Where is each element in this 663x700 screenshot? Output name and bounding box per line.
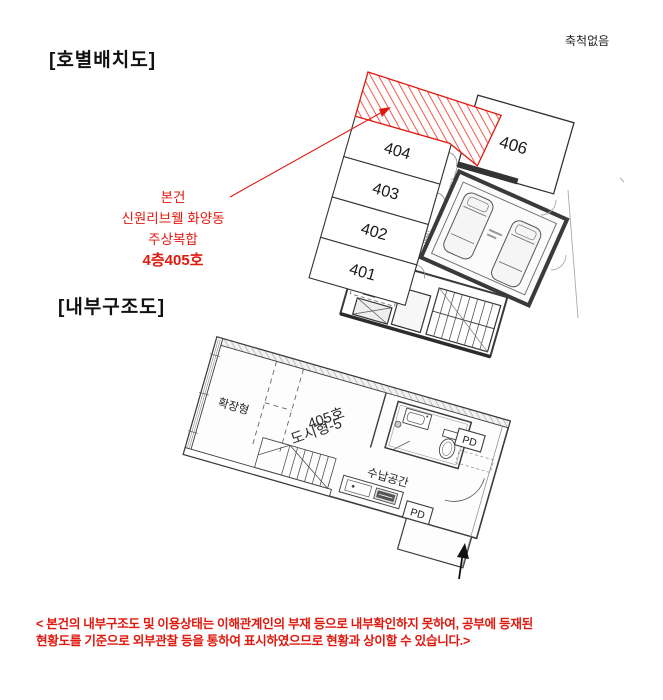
- floor-plan-drawing: 확장형 405호 도시형-5: [173, 336, 511, 569]
- appraisal-page: [호별배치도] 축척없음 [내부구조도] 본건 신원리브웰 화양동 주상복합 4…: [0, 0, 663, 700]
- site-plan-drawing: 1,350 1,300 406: [302, 64, 593, 366]
- plan-drawings: 1,350 1,300 406: [0, 0, 663, 700]
